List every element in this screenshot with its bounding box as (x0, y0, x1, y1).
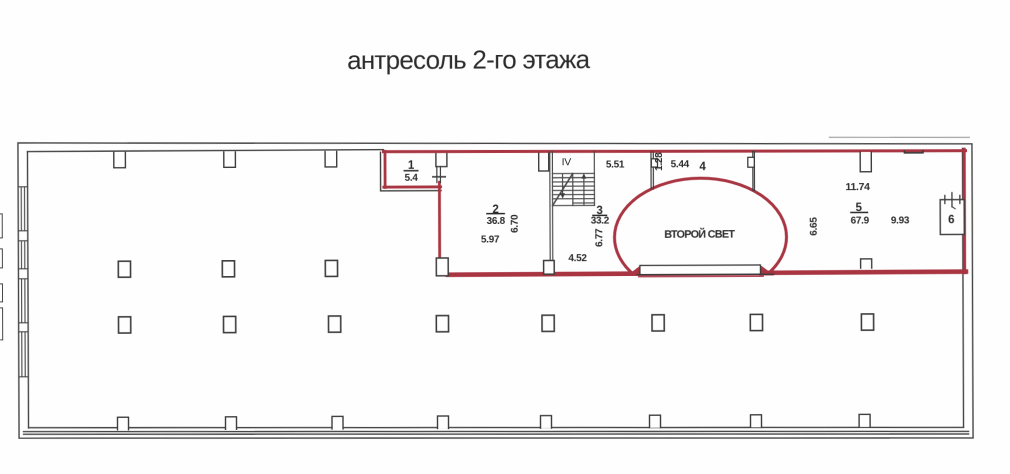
svg-text:4.52: 4.52 (568, 253, 587, 264)
svg-text:5.97: 5.97 (481, 234, 500, 245)
svg-text:6.65: 6.65 (809, 217, 820, 236)
svg-text:6: 6 (948, 214, 954, 226)
svg-text:4: 4 (699, 161, 706, 173)
svg-text:IV: IV (562, 156, 572, 168)
svg-text:33.2: 33.2 (591, 216, 610, 227)
svg-text:9.93: 9.93 (891, 215, 910, 226)
svg-text:36.8: 36.8 (487, 216, 506, 227)
svg-text:ВТОРОЙ СВЕТ: ВТОРОЙ СВЕТ (664, 227, 735, 240)
svg-text:5.4: 5.4 (405, 173, 419, 184)
svg-text:1.28: 1.28 (654, 152, 665, 171)
svg-text:6.77: 6.77 (594, 228, 605, 247)
svg-text:5.51: 5.51 (606, 160, 625, 171)
svg-text:5.44: 5.44 (671, 159, 690, 170)
svg-text:67.9: 67.9 (851, 216, 870, 227)
svg-text:11.74: 11.74 (845, 181, 870, 193)
svg-text:6.70: 6.70 (510, 214, 521, 233)
